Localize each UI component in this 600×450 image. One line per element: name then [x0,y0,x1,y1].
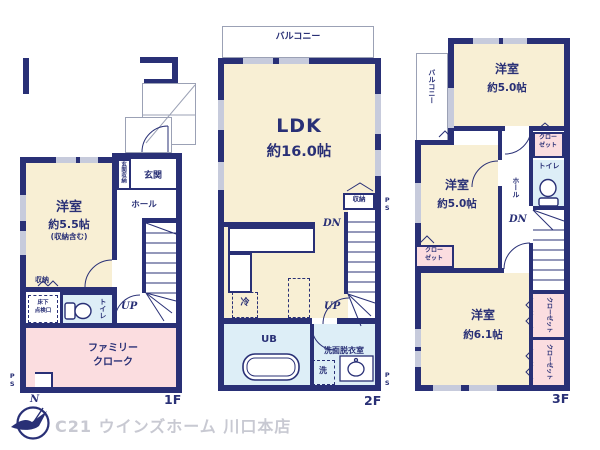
wall [142,218,176,223]
closet-label: ゼット [539,143,557,150]
window [218,100,224,130]
wall [176,153,182,393]
wall [218,385,381,391]
wall [529,243,533,385]
stairwell-2f [348,210,375,318]
room-size: 約5.0帖 [437,199,477,211]
wall [20,157,26,393]
branding-logo-text: C21 ウインズホーム 川口本店 [55,418,291,436]
window [473,38,499,44]
wall [60,292,115,295]
window [218,162,224,190]
floorplan-page: 洋室 約5.5帖 (収納含む) 玄関収納 玄関 ホール UP 収納 床下 点検口… [0,0,600,450]
family-cloak-label: ファミリー [88,343,138,354]
floor-label-2f: 2F [364,394,381,408]
hall-label: ホール [131,201,157,211]
wall [60,292,63,326]
wall [564,38,570,391]
room-label: 洋室 [56,201,82,216]
floor-plan-2f: バルコニー LDK 約16.0帖 収納 DN UP 冷 UB 洗面脱衣室 洗 P… [213,22,403,414]
washer-label: 洗 [319,367,327,376]
fridge-label: 冷 [240,298,249,308]
wall [337,318,375,324]
window [56,157,76,163]
window [415,329,421,347]
window [448,88,454,128]
dn-label: DN [509,214,527,225]
closet-label: クローゼット [545,344,552,380]
window [20,195,26,221]
floor-label-3f: 3F [552,392,569,406]
wall [498,186,502,268]
room-size: 約5.5帖 [48,219,90,231]
compass-north-label: N [30,394,39,405]
door-arc [505,128,531,154]
storage-label: 収納 [35,277,49,285]
room-size: 約5.0帖 [487,83,527,95]
floor-plan-1f: 洋室 約5.5帖 (収納含む) 玄関収納 玄関 ホール UP 収納 床下 点検口… [18,55,210,407]
balcony-label: バルコニー [427,69,435,129]
window [469,385,497,391]
up-label: UP [121,301,137,312]
window [20,231,26,255]
kitchen-counter [228,253,252,293]
wall [529,126,564,131]
wall [533,290,564,294]
dn-label: DN [323,218,341,229]
wall [498,126,502,160]
wall [131,188,176,190]
ps-label: PS [8,372,15,388]
window [375,150,381,176]
kitchen-counter [228,227,315,253]
room-size: 約6.1帖 [463,330,503,342]
floor-hatch-label: 床下 [37,300,48,306]
stairs-3f [533,210,564,280]
wall [224,318,312,324]
closet-label: ゼット [425,256,443,263]
window [375,94,381,134]
storage-label: 収納 [353,196,366,203]
floor-hatch-label: 点検口 [35,308,52,314]
floor-label-1f: 1F [164,393,181,407]
window [80,157,98,163]
ldk-label: LDK [276,116,322,137]
wall [533,337,564,340]
door-arc [504,243,530,269]
ps-notch [35,372,53,387]
genkan-label: 玄関 [144,171,162,181]
wall [344,212,348,294]
ub-label: UB [261,334,277,345]
window [279,58,309,64]
room-note: (収納含む) [51,233,88,241]
genkan-storage-label: 玄関収納 [120,161,126,189]
closet-label: クローゼット [545,297,552,333]
ps-label: PS [383,371,390,387]
ps-label: PS [383,196,390,212]
wall [23,58,29,94]
wall [450,126,505,131]
room-label: 洋室 [471,309,495,322]
ldk-size: 約16.0帖 [267,144,332,160]
floor-plan-3f: バルコニー 洋室 約5.0帖 洋室 約5.0帖 洋室 約6.1帖 クロー ゼット… [403,33,583,413]
wall [415,268,504,273]
room-label: 洋室 [495,63,519,76]
entrance-porch [125,117,172,153]
up-label: UP [324,301,340,312]
closet-label: クロー [539,135,557,142]
stairs-1f [146,223,176,321]
window [415,183,421,223]
counter-box [288,278,310,318]
toilet-label: トイレ [539,163,560,171]
wall [533,206,564,210]
balcony-label: バルコニー [276,32,321,42]
window [503,38,527,44]
window [433,385,461,391]
window [415,351,421,367]
washroom-label: 洗面脱衣室 [324,347,364,356]
wall [26,323,176,328]
hall-label: ホール [511,177,519,207]
family-cloak-label: クローク [93,357,133,368]
room-label: 洋室 [445,179,469,192]
wall [142,223,146,293]
toilet-label: トイレ [98,298,106,322]
wall [20,387,182,393]
closet-label: クロー [425,248,443,255]
window [243,58,273,64]
